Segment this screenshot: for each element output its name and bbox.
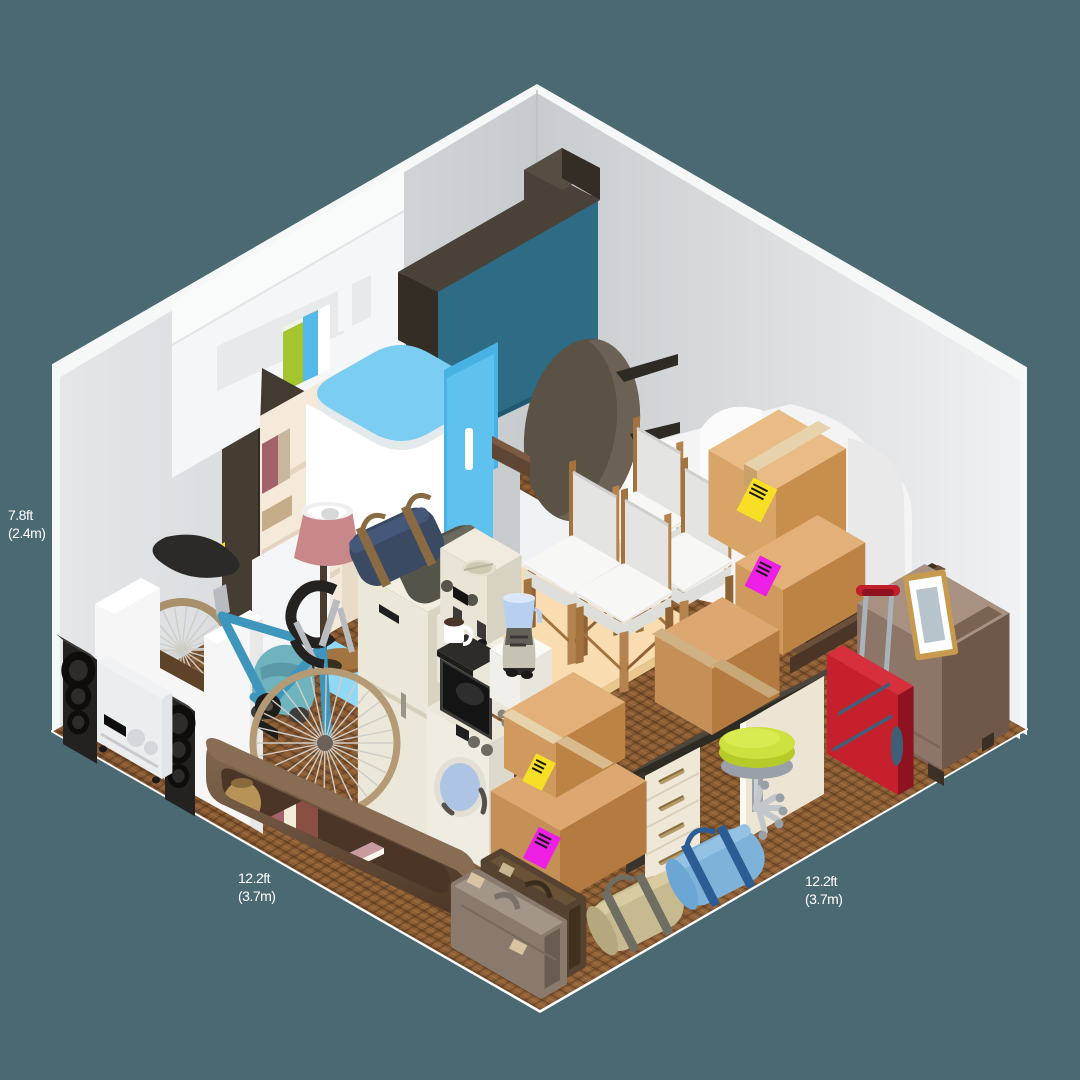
svg-text:7.8ft: 7.8ft (8, 507, 33, 523)
svg-text:12.2ft: 12.2ft (238, 870, 271, 886)
svg-text:(3.7m): (3.7m) (805, 891, 842, 907)
svg-text:12.2ft: 12.2ft (805, 873, 838, 889)
svg-text:(2.4m): (2.4m) (8, 525, 45, 541)
svg-text:(3.7m): (3.7m) (238, 888, 275, 904)
